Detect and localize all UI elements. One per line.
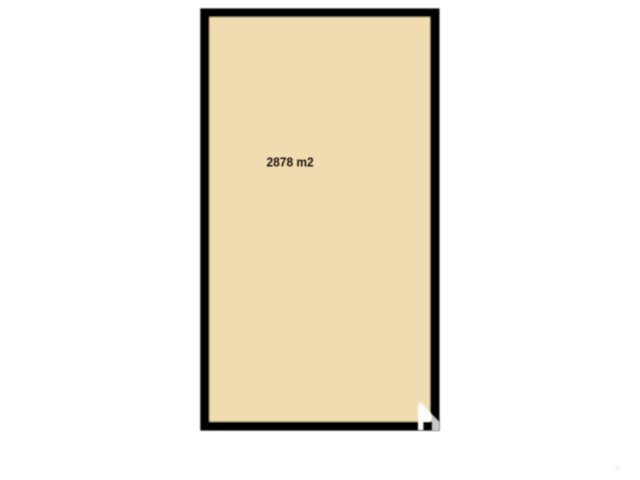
svg-text:2878 m2: 2878 m2 xyxy=(267,155,314,170)
